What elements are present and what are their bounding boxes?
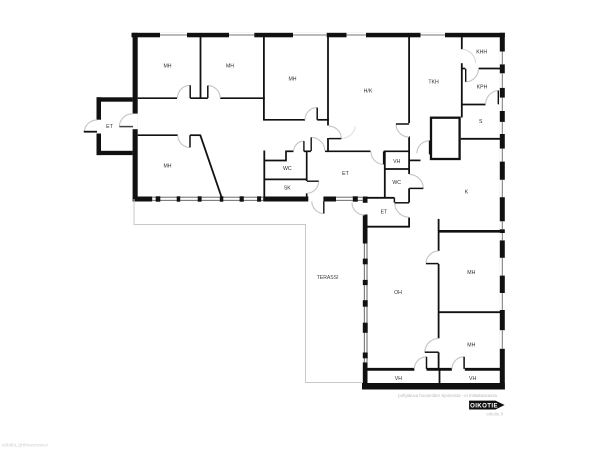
svg-text:VH: VH xyxy=(395,376,402,382)
svg-text:H/K: H/K xyxy=(364,88,373,94)
svg-text:ET: ET xyxy=(381,210,388,216)
svg-text:MH: MH xyxy=(163,63,171,69)
svg-text:KPH: KPH xyxy=(477,85,488,91)
svg-text:SK: SK xyxy=(284,186,291,192)
svg-text:ET: ET xyxy=(106,124,113,130)
svg-text:WC: WC xyxy=(392,180,401,186)
svg-text:MH: MH xyxy=(226,63,234,69)
svg-text:VH: VH xyxy=(393,159,400,165)
svg-text:S: S xyxy=(479,119,483,125)
svg-text:WC: WC xyxy=(283,166,292,172)
svg-text:e0b8bL2jHfmwxnzwcA: e0b8bL2jHfmwxnzwcA xyxy=(2,443,49,448)
svg-text:MH: MH xyxy=(163,163,171,169)
svg-text:MH: MH xyxy=(467,343,475,349)
svg-text:VH: VH xyxy=(469,376,476,382)
svg-text:oikotie.fi: oikotie.fi xyxy=(486,412,503,417)
svg-text:KHH: KHH xyxy=(476,50,487,56)
svg-text:ET: ET xyxy=(342,171,349,177)
svg-text:K: K xyxy=(465,190,469,196)
svg-text:TKH: TKH xyxy=(428,79,439,85)
svg-text:MH: MH xyxy=(288,76,296,82)
svg-text:OH: OH xyxy=(394,290,402,296)
svg-text:pohjakuva huoneiden sijainnist: pohjakuva huoneiden sijainnista - ei mit… xyxy=(398,393,497,398)
svg-text:OIKOTIE: OIKOTIE xyxy=(470,402,498,409)
svg-text:MH: MH xyxy=(467,270,475,276)
svg-text:TERASSI: TERASSI xyxy=(317,275,339,281)
